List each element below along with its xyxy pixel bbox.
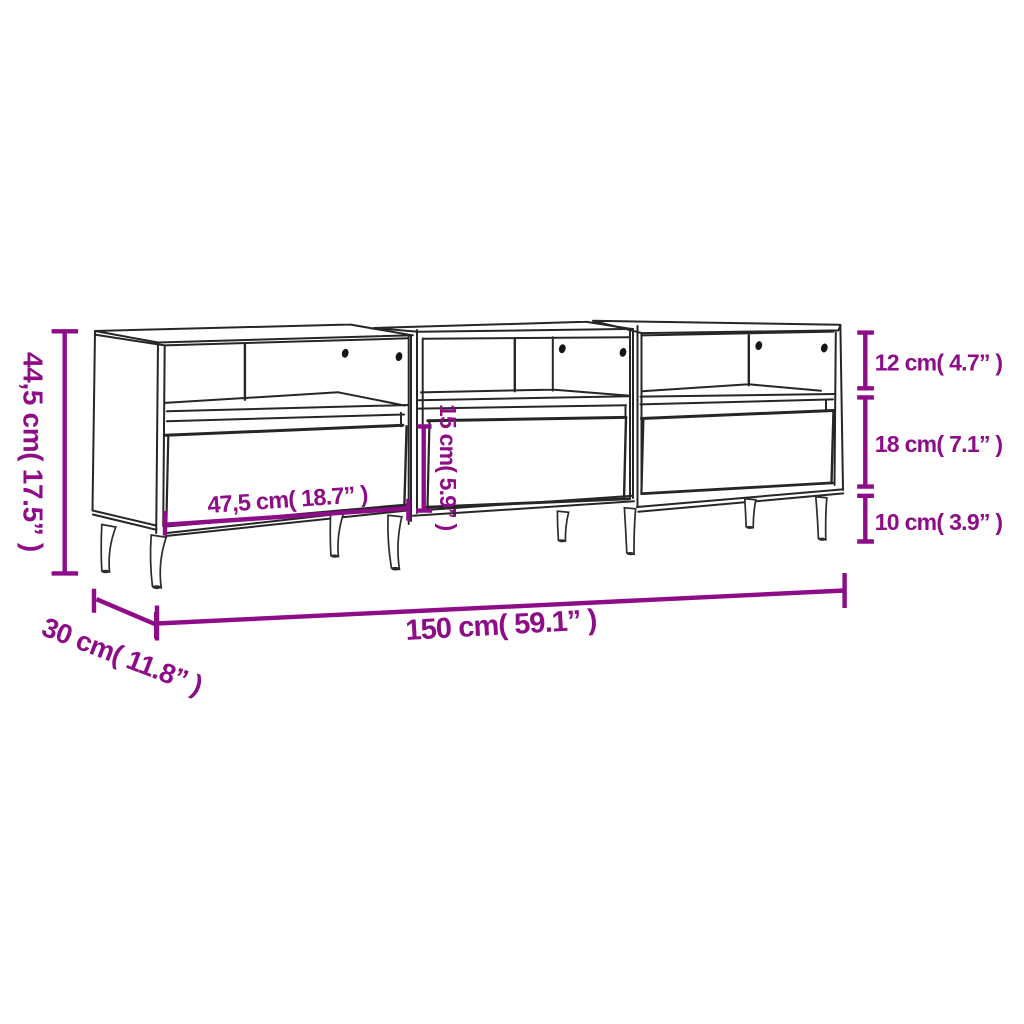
- svg-text:15 cm( 5.9” ): 15 cm( 5.9” ): [435, 404, 461, 531]
- svg-text:44,5 cm( 17.5” ): 44,5 cm( 17.5” ): [18, 352, 49, 552]
- svg-text:30 cm( 11.8” ): 30 cm( 11.8” ): [38, 611, 207, 700]
- svg-text:10 cm( 3.9” ): 10 cm( 3.9” ): [875, 509, 1003, 535]
- svg-text:18 cm( 7.1” ): 18 cm( 7.1” ): [875, 431, 1003, 457]
- svg-text:12 cm( 4.7” ): 12 cm( 4.7” ): [875, 350, 1003, 376]
